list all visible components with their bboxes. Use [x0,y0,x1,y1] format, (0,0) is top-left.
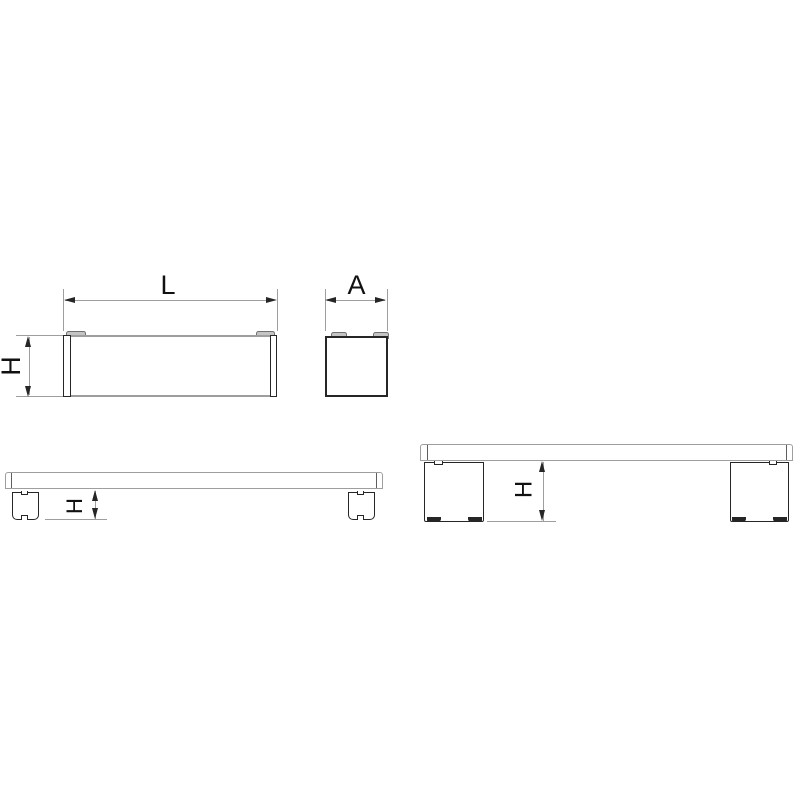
extension-line-bottom [16,396,63,397]
leg-foot-left [732,517,746,523]
bench-top-bar [420,444,793,461]
leg-top-notch [21,491,28,495]
leg-foot-right [468,517,482,523]
arrowhead-left-icon [64,297,75,303]
bar-cap-divider-left [11,473,12,489]
leg-foot-right [773,517,787,523]
end-cap-left [63,335,71,397]
arrowhead-down-icon [92,508,98,519]
extension-line-left [325,289,326,331]
extension-line-right [387,289,388,331]
technical-drawing-canvas: L H A [0,0,800,800]
arrowhead-right-icon [266,297,277,303]
bench-top-bar [5,472,383,489]
dim-label-height: H [0,351,24,381]
leg-bottom-notch [21,515,28,520]
leg-foot-left [427,517,441,523]
side-view-body [325,336,388,397]
arrowhead-up-icon [25,336,31,347]
leg-top-notch [769,461,778,466]
bar-cap-divider-right [376,473,377,489]
extension-line-right [277,289,278,331]
extension-line-left [63,289,64,331]
bench-leg-left [424,462,484,523]
dim-label-leg-height: H [511,475,538,505]
arrowhead-left-icon [325,297,336,303]
dim-label-length: L [133,270,203,300]
leg-top-notch [434,461,443,466]
front-view-body [63,335,277,397]
dim-label-width: A [336,270,377,300]
arrowhead-down-icon [25,386,31,397]
bar-cap-divider-right [786,445,787,460]
bench-leg-right [730,462,789,523]
dim-label-leg-height: H [63,492,87,520]
ground-line [487,521,556,522]
arrowhead-up-icon [92,490,98,501]
arrowhead-down-icon [539,510,545,521]
leg-top-notch [357,491,364,495]
end-cap-right [270,335,278,397]
arrowhead-up-icon [539,461,545,472]
leg-bottom-notch [357,515,364,520]
extension-line-top [16,335,63,336]
bar-cap-divider-left [427,445,428,460]
